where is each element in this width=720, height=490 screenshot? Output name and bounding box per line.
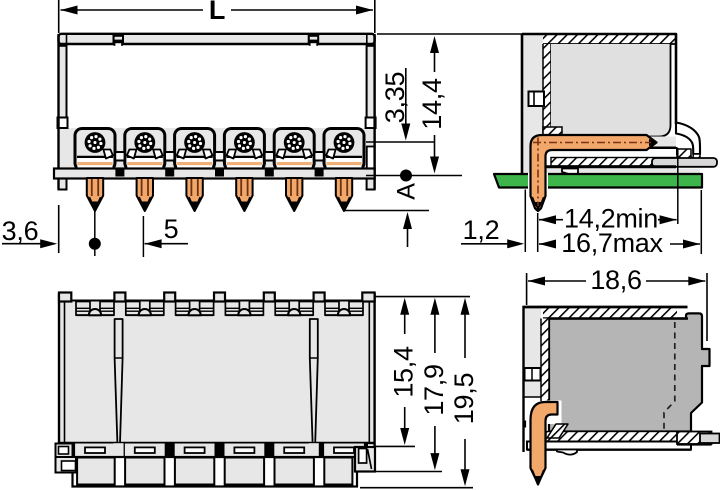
svg-text:3,6: 3,6 bbox=[2, 216, 39, 246]
svg-text:18,6: 18,6 bbox=[590, 265, 641, 295]
svg-text:1,2: 1,2 bbox=[463, 215, 500, 245]
svg-text:15,4: 15,4 bbox=[389, 346, 419, 398]
svg-text:19,5: 19,5 bbox=[449, 373, 479, 424]
svg-text:A: A bbox=[393, 183, 421, 200]
svg-text:14,4: 14,4 bbox=[417, 78, 447, 130]
svg-text:17,9: 17,9 bbox=[419, 364, 449, 415]
svg-text:L: L bbox=[209, 0, 225, 25]
svg-text:5: 5 bbox=[164, 214, 179, 244]
svg-text:16,7max: 16,7max bbox=[561, 228, 663, 258]
